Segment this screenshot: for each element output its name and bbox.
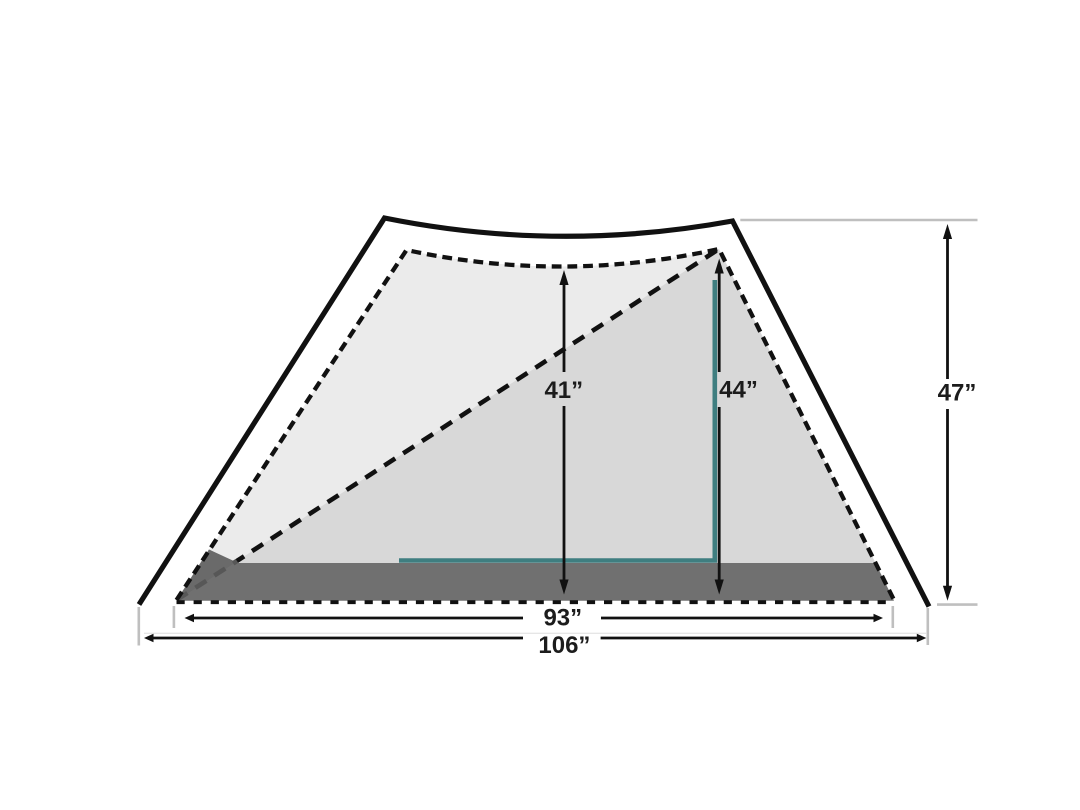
svg-text:47”: 47” [938, 380, 977, 407]
svg-text:41”: 41” [544, 377, 583, 404]
svg-text:106”: 106” [538, 632, 590, 659]
svg-text:44”: 44” [719, 377, 758, 404]
svg-text:93”: 93” [543, 605, 582, 632]
